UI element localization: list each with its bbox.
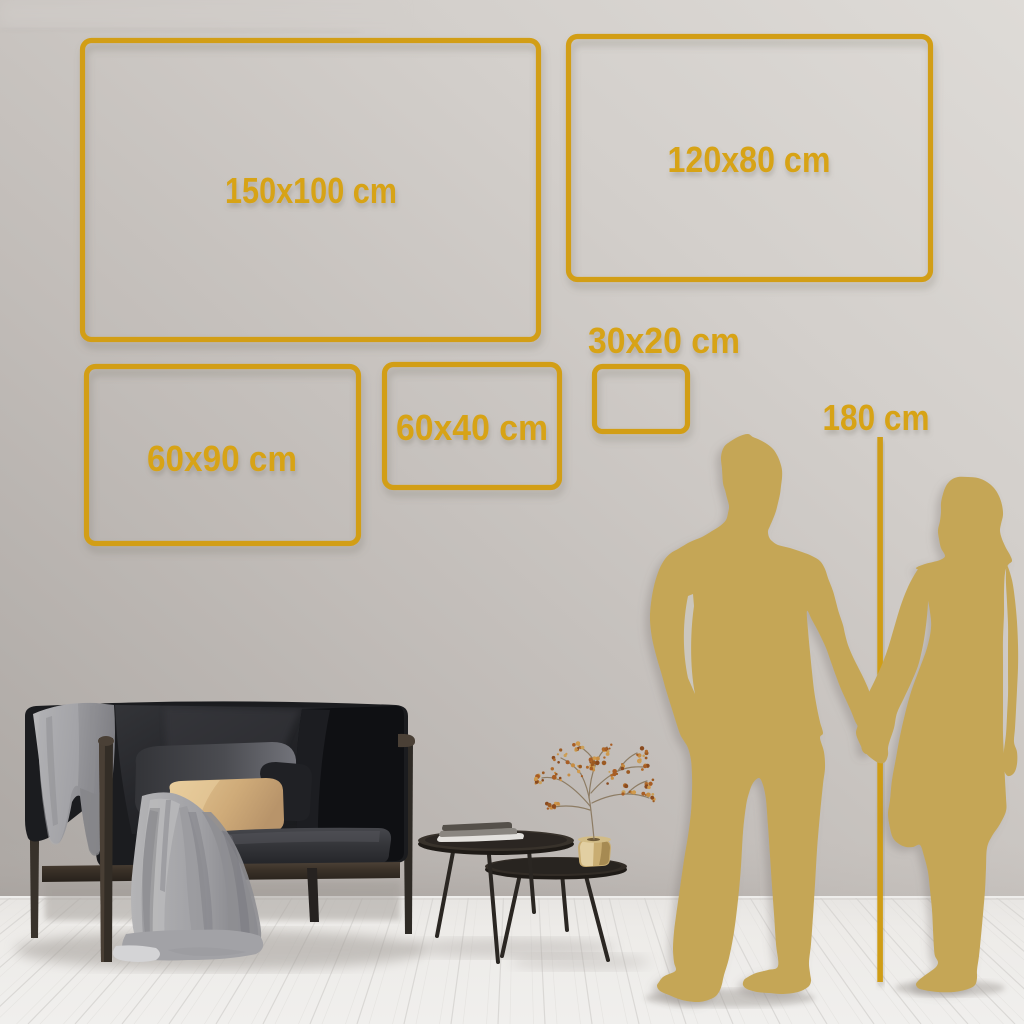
svg-text:150x100 cm: 150x100 cm: [225, 170, 397, 211]
svg-text:120x80 cm: 120x80 cm: [668, 139, 831, 180]
svg-text:30x20 cm: 30x20 cm: [588, 320, 740, 361]
svg-text:180 cm: 180 cm: [823, 397, 930, 438]
svg-text:60x40 cm: 60x40 cm: [396, 407, 548, 448]
svg-text:60x90 cm: 60x90 cm: [147, 438, 297, 479]
